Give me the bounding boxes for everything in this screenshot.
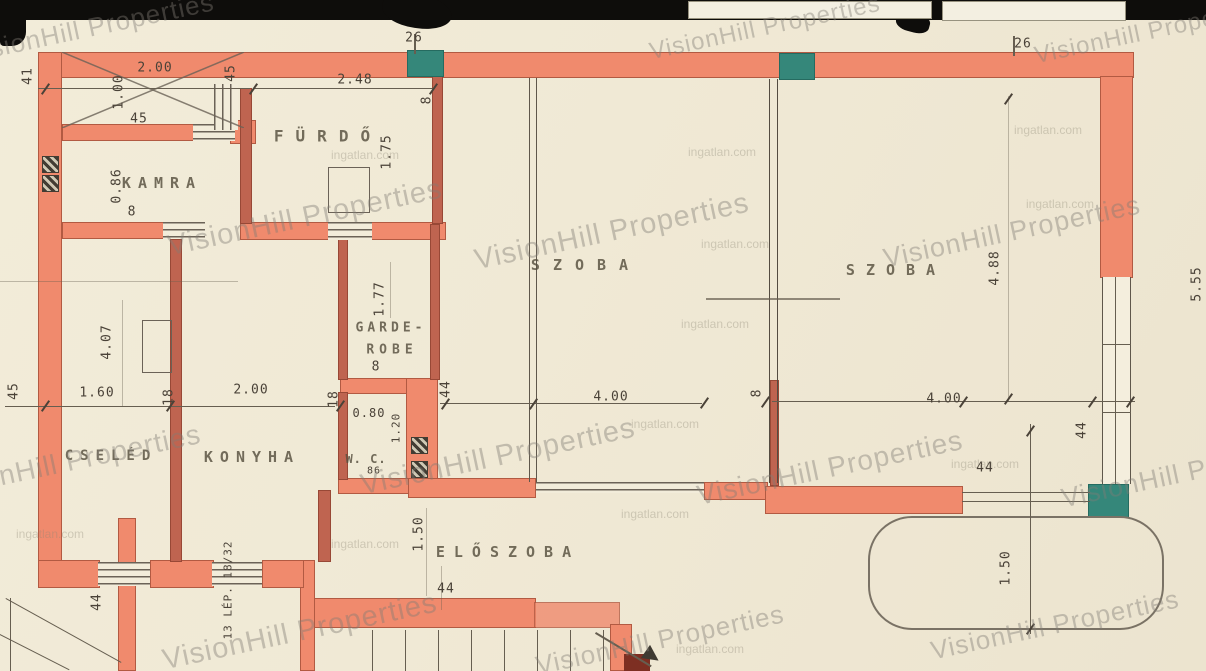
dim-line-407 xyxy=(122,300,123,406)
dimension-label: 41 xyxy=(21,67,36,85)
centerline-szoba-right xyxy=(706,298,840,300)
room-label-robe: ROBE xyxy=(366,343,417,358)
dim-line-177 xyxy=(390,262,391,318)
dimension-label: 0.80 xyxy=(353,406,386,420)
dimension-label: 8 xyxy=(750,389,765,398)
wall-bottomleft-vertical xyxy=(118,518,136,671)
site-watermark: ingatlan.com xyxy=(676,642,744,656)
window-right-mullion-h1 xyxy=(1102,344,1131,345)
window-right-mullion-line xyxy=(1115,277,1116,484)
dimension-label: 44 xyxy=(90,593,105,611)
room-label-kamra: KAMRA xyxy=(122,174,202,192)
wall-hall-left-upper xyxy=(318,490,331,562)
wall-bottomleft-h1 xyxy=(38,560,100,588)
dimension-label: 26 xyxy=(405,31,423,46)
site-watermark: ingatlan.com xyxy=(1026,197,1094,211)
door-hall-opening xyxy=(536,482,704,493)
dimension-label: 45 xyxy=(130,112,148,127)
dimension-label: 1.77 xyxy=(373,281,388,316)
dimension-label: 2.48 xyxy=(337,73,372,88)
wall-eloszoba-bottom-light xyxy=(534,602,620,628)
dimension-label: 45 xyxy=(7,382,22,400)
porch-vertical xyxy=(10,598,11,671)
scanned-floorplan: FÜRDŐKAMRASZOBASZOBAGARDE-ROBEKONYHACSEL… xyxy=(0,0,1206,671)
brand-watermark: VisionHill Properties xyxy=(165,173,446,263)
dim-line-main-row-2 xyxy=(440,403,702,404)
dimension-label: 4.00 xyxy=(593,390,628,405)
site-watermark: ingatlan.com xyxy=(631,417,699,431)
dimension-label: 0.86 xyxy=(110,168,125,203)
dimension-label: 8 xyxy=(372,360,381,375)
dimension-label: 18 xyxy=(162,388,177,406)
door-bottomleft-1 xyxy=(98,562,150,586)
site-watermark: ingatlan.com xyxy=(331,537,399,551)
dimension-label: 2.00 xyxy=(137,61,172,76)
window-teal-top-left xyxy=(407,50,444,77)
dimension-label: 5.55 xyxy=(1190,266,1205,301)
dimension-label: 4.07 xyxy=(100,324,115,359)
site-watermark: ingatlan.com xyxy=(621,507,689,521)
site-watermark: ingatlan.com xyxy=(1014,123,1082,137)
chimney-flue-wc-1 xyxy=(411,437,428,454)
site-watermark: ingatlan.com xyxy=(331,148,399,162)
dimension-label: 1.20 xyxy=(390,413,403,444)
stair-tread-line xyxy=(504,630,505,671)
dimension-label: 4.00 xyxy=(926,392,961,407)
site-watermark: ingatlan.com xyxy=(681,317,749,331)
scan-dark-handwriting xyxy=(380,0,454,33)
site-watermark: ingatlan.com xyxy=(951,457,1019,471)
wall-right-exterior-upper xyxy=(1100,76,1133,278)
dimension-label: 44 xyxy=(1075,421,1090,439)
dim-line-top-1 xyxy=(38,88,250,89)
window-right-wall xyxy=(1102,277,1131,484)
dimension-label: 26 xyxy=(1014,37,1032,52)
brand-watermark: VisionHill Properties xyxy=(1059,430,1206,515)
window-right-mullion-h2 xyxy=(1102,412,1131,413)
site-watermark: ingatlan.com xyxy=(701,237,769,251)
stair-tread-line xyxy=(405,630,406,671)
stair-tread-line xyxy=(372,630,373,671)
door-bottomleft-2 xyxy=(212,562,262,586)
dimension-label: 1.50 xyxy=(999,550,1014,585)
stove-fixture xyxy=(142,320,172,373)
stair-tread-line xyxy=(438,630,439,671)
wall-kamra-bottom xyxy=(62,222,172,239)
room-label-konyha: KONYHA xyxy=(204,448,300,466)
guide-line-282 xyxy=(0,281,238,282)
room-label-garde: GARDE- xyxy=(356,321,427,336)
site-watermark: ingatlan.com xyxy=(16,527,84,541)
wall-garderobe-left xyxy=(338,224,348,380)
room-label-frd: FÜRDŐ xyxy=(274,127,382,146)
site-watermark: ingatlan.com xyxy=(688,145,756,159)
dim-line-top-2 xyxy=(253,88,433,89)
wall-left-exterior xyxy=(38,52,62,572)
dimension-label: 2.00 xyxy=(233,383,268,398)
dimension-label: 4.88 xyxy=(988,250,1003,285)
dimension-label: 1.00 xyxy=(112,74,127,109)
dimension-label: 44 xyxy=(437,582,455,597)
partition-between-szobas xyxy=(769,79,778,483)
chimney-flue-left-1 xyxy=(42,156,59,173)
dim-tick xyxy=(1004,393,1013,405)
stair-note: 13 LÉP. 18/32 xyxy=(222,540,235,639)
partition-szoba-left xyxy=(529,78,537,482)
dim-line-150-terrace xyxy=(1030,424,1031,634)
stair-tread-line xyxy=(471,630,472,671)
dimension-label: 1.50 xyxy=(412,516,427,551)
wall-bottomleft-h2 xyxy=(150,560,214,588)
chimney-flue-left-2 xyxy=(42,175,59,192)
scan-form-box-2 xyxy=(942,1,1126,21)
dimension-label: 45 xyxy=(224,64,239,82)
dim-line-488 xyxy=(1008,96,1009,402)
dimension-label: 8 xyxy=(128,205,137,220)
wall-bottomleft-h3 xyxy=(262,560,304,588)
room-label-wc: W. C. xyxy=(345,452,386,466)
dimension-label: 1.60 xyxy=(79,386,114,401)
dimension-label: 8 xyxy=(420,96,435,105)
window-teal-top-right xyxy=(779,53,815,80)
room-label-elszoba: ELŐSZOBA xyxy=(436,543,580,561)
wall-garderobe-right xyxy=(430,224,440,380)
dimension-label: 18 xyxy=(327,390,342,408)
dimension-label: 44 xyxy=(439,380,454,398)
